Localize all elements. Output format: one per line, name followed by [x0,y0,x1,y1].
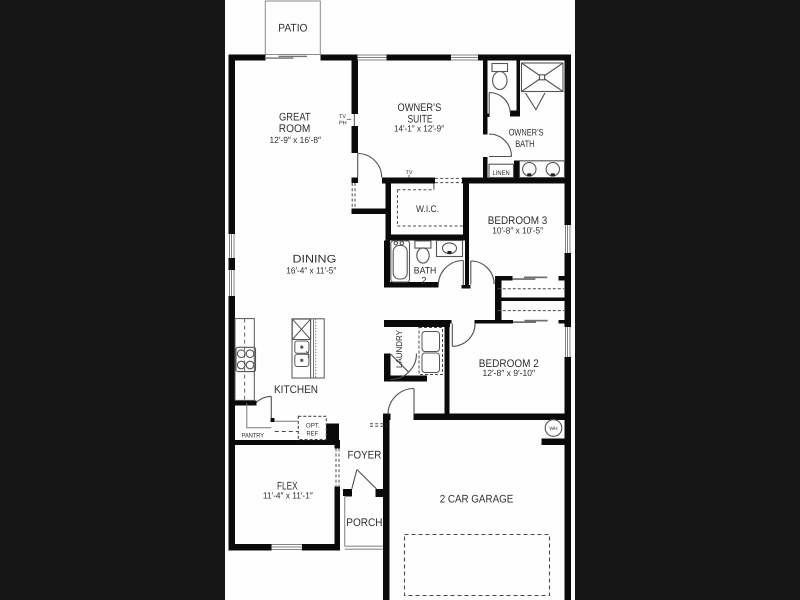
svg-text:PORCH: PORCH [346,517,382,529]
svg-text:11′-4″ x 11′-1″: 11′-4″ x 11′-1″ [263,491,314,501]
svg-text:LINEN: LINEN [493,170,510,177]
svg-text:OWNER’S: OWNER’S [509,127,544,138]
svg-text:OWNER’S: OWNER’S [398,102,442,114]
svg-text:12′-9″ x 16′-8″: 12′-9″ x 16′-8″ [270,135,322,145]
svg-text:TV: TV [339,114,346,120]
svg-text:ROOM: ROOM [279,123,311,135]
svg-text:10′-8″ x 10′-5″: 10′-8″ x 10′-5″ [492,225,543,235]
svg-text:16′-4″ x 11′-5″: 16′-4″ x 11′-5″ [286,266,337,276]
svg-text:2: 2 [421,276,426,287]
svg-text:PATIO: PATIO [278,22,308,34]
svg-text:KITCHEN: KITCHEN [274,384,318,396]
svg-text:OPT.: OPT. [306,423,320,430]
svg-text:LAUNDRY: LAUNDRY [394,330,404,368]
svg-text:14′-1″ x 12′-9″: 14′-1″ x 12′-9″ [394,123,445,133]
svg-text:2 CAR GARAGE: 2 CAR GARAGE [440,494,514,506]
svg-text:PH: PH [339,120,347,126]
svg-text:PANTRY: PANTRY [242,432,265,439]
svg-text:12′-8″ x 9′-10″: 12′-8″ x 9′-10″ [483,368,536,378]
svg-text:GREAT: GREAT [279,112,311,124]
svg-text:W.I.C.: W.I.C. [416,204,439,215]
svg-text:DINING: DINING [293,254,337,266]
svg-text:REF: REF [307,431,319,438]
svg-text:BATH: BATH [515,139,535,150]
svg-text:WH: WH [549,426,558,432]
svg-text:FOYER: FOYER [348,449,382,461]
